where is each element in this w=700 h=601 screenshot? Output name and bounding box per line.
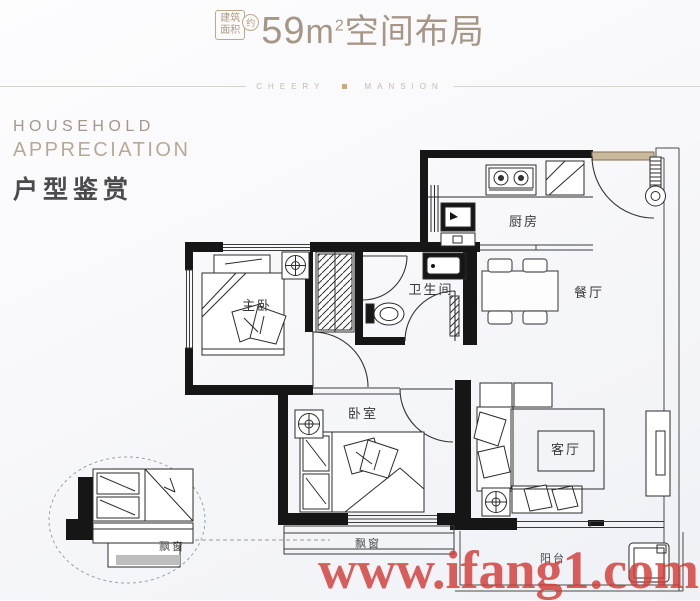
nightstand-icon xyxy=(214,255,270,273)
ac-unit-icon xyxy=(482,488,510,516)
washbasin-icon xyxy=(423,253,466,279)
wardrobe-icon xyxy=(316,252,354,332)
fridge-icon xyxy=(546,161,584,195)
bathroom-inner-door xyxy=(363,256,407,300)
kitchen-sliding-door xyxy=(480,245,593,250)
kitchen-furniture xyxy=(428,161,593,246)
drain-pipe-icon xyxy=(646,157,666,206)
ac-unit-icon xyxy=(282,252,309,279)
tv-cabinet-icon xyxy=(646,411,670,496)
bedroom-partition-wall xyxy=(313,388,400,394)
bedroom-bed-icon xyxy=(300,432,424,512)
master-bedroom-label: 主卧 xyxy=(242,298,272,313)
dining-label: 餐厅 xyxy=(574,285,604,300)
master-bedroom-window xyxy=(185,270,193,348)
kitchen-cabinet-icon xyxy=(441,233,475,246)
master-bed-icon xyxy=(202,273,286,355)
dining-chair-icon xyxy=(523,259,547,272)
stove-icon xyxy=(486,165,536,195)
kitchen-shaft-lines xyxy=(431,185,438,232)
bathroom-label: 卫生间 xyxy=(408,282,453,297)
entrance-door xyxy=(592,152,654,218)
dining-table-icon xyxy=(482,271,558,311)
kitchen-label: 厨房 xyxy=(509,214,539,229)
dining-chair-icon xyxy=(488,259,512,272)
watermark: www.ifang1.com xyxy=(318,539,699,601)
dining-chair-icon xyxy=(523,311,547,324)
bedroom-furniture xyxy=(300,432,424,512)
toilet-icon xyxy=(366,303,404,325)
balcony-sliding-door xyxy=(517,521,664,528)
dining-furniture xyxy=(482,259,558,324)
detail-bed xyxy=(93,469,193,521)
shower-screen-icon xyxy=(450,296,459,336)
living-room-label: 客厅 xyxy=(551,442,581,457)
bathroom-door xyxy=(405,291,455,341)
balcony-fixtures xyxy=(629,157,669,582)
detail-bay-window-label: 飘窗 xyxy=(159,539,185,553)
bedroom-label: 卧室 xyxy=(348,406,378,421)
floor-plan: 厨房 餐厅 卫生间 主卧 卧室 客厅 飘窗 阳台 飘窗 xyxy=(0,0,700,600)
bedroom-bottom-window xyxy=(348,516,437,523)
sofa-icon xyxy=(474,383,552,491)
kitchen-sink-icon xyxy=(441,203,475,231)
ac-unit-icon xyxy=(295,410,323,438)
dining-chair-icon xyxy=(488,311,512,324)
top-lightwell-window xyxy=(223,245,310,251)
